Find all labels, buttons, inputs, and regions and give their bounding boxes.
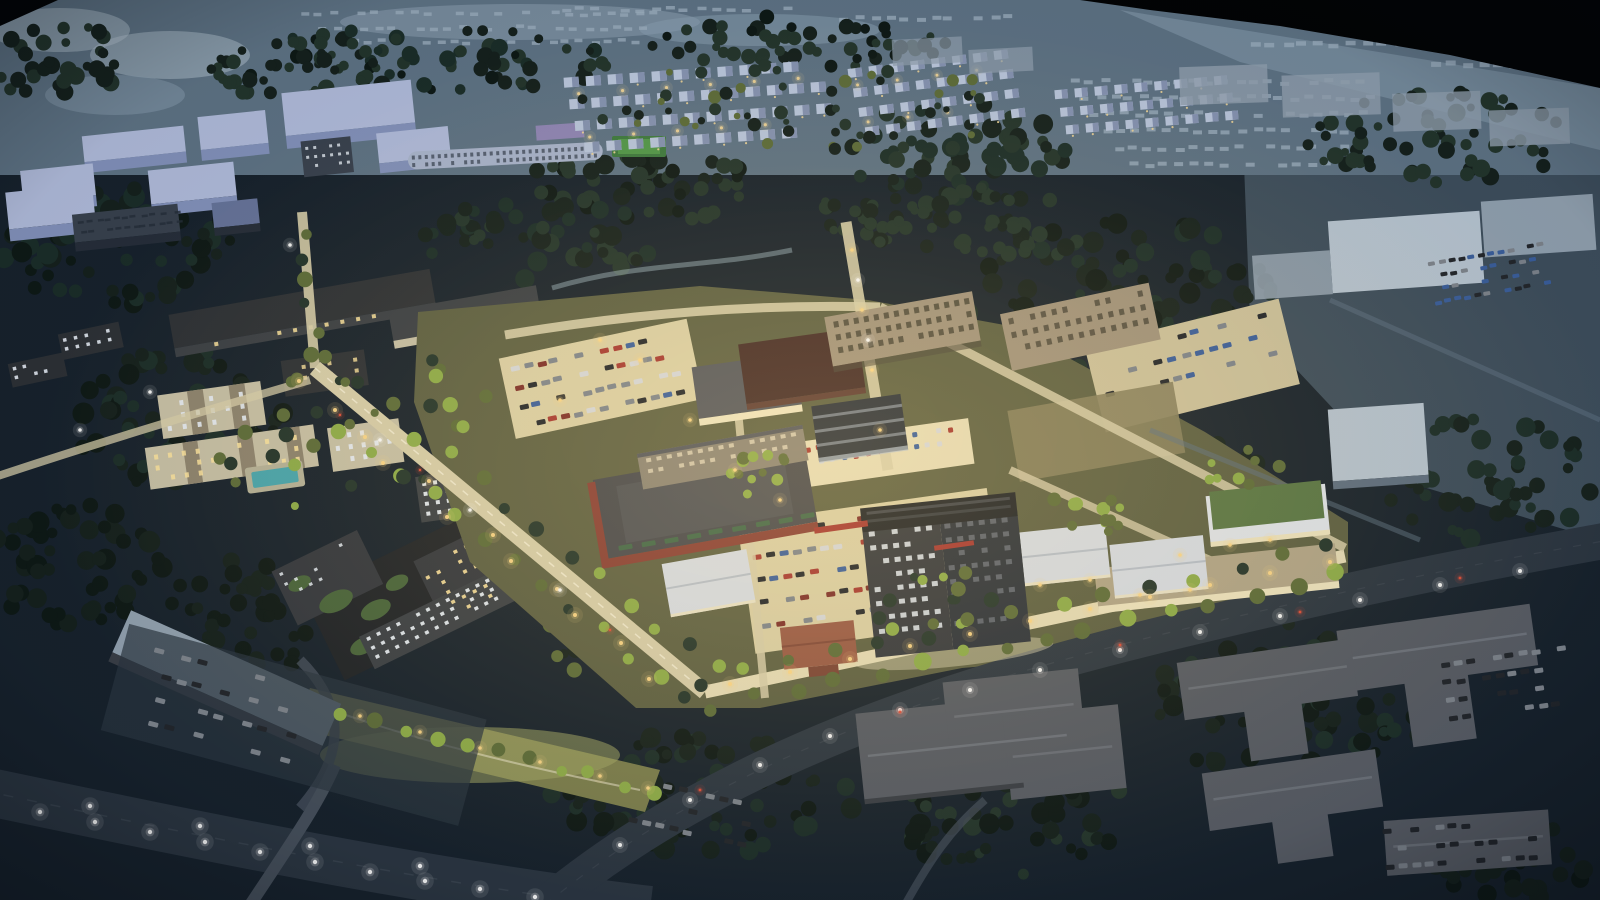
- aerial-rendering-canvas: [0, 0, 1600, 900]
- scene-svg: [0, 0, 1600, 900]
- vignette-overlay: [0, 0, 1600, 900]
